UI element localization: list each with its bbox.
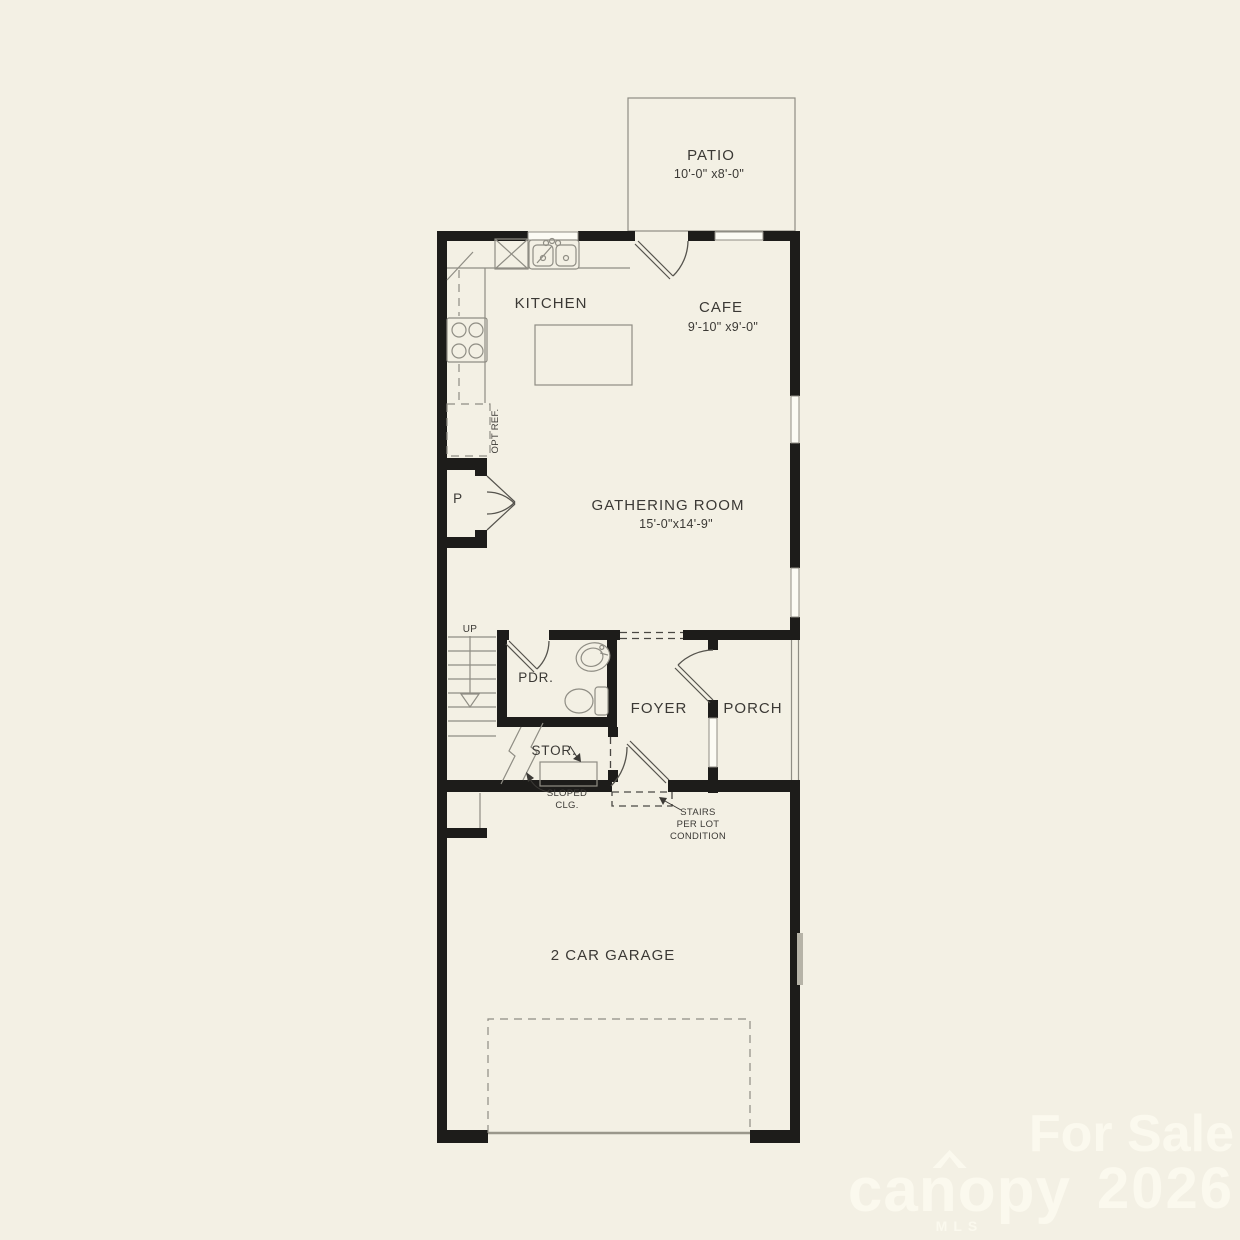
kitchen-island (535, 325, 632, 385)
sloped-clg-line1: SLOPED (547, 788, 587, 799)
foyer-sidelight-window (709, 718, 717, 767)
toilet (565, 687, 608, 715)
gathering-dims: 15'-0"x14'-9" (639, 517, 713, 531)
windows (528, 232, 803, 985)
porch-edge (792, 640, 799, 780)
gathering-window-lower (791, 568, 799, 617)
room-garage: 2 CAR GARAGE (480, 793, 750, 1133)
sloped-clg-line2: CLG. (555, 800, 578, 811)
stove (447, 318, 487, 362)
room-patio: PATIO 10'-0" x8'-0" (628, 98, 795, 231)
room-kitchen: OPT REF. KITCHEN (447, 239, 632, 457)
kitchen-label: KITCHEN (515, 295, 588, 312)
room-gathering: GATHERING ROOM 15'-0"x14'-9" (592, 497, 745, 639)
corner-cabinet (495, 239, 528, 269)
patio-door (635, 241, 688, 279)
break-line-1 (501, 727, 521, 784)
counter-corner-miter (447, 252, 473, 280)
garage-entry-door (611, 741, 669, 786)
patio-dims: 10'-0" x8'-0" (674, 167, 744, 181)
stairs-note-line3: CONDITION (670, 831, 726, 842)
cafe-window (715, 232, 763, 240)
room-pantry: P (453, 476, 515, 530)
room-foyer: FOYER (631, 650, 713, 717)
floor-plan: PATIO 10'-0" x8'-0" (0, 0, 1240, 1240)
patio-label: PATIO (687, 147, 735, 164)
front-door (675, 650, 713, 703)
gathering-label: GATHERING ROOM (592, 497, 745, 514)
up-label: UP (463, 624, 478, 635)
kitchen-sink (529, 239, 579, 270)
optional-refrigerator: OPT REF. (447, 404, 501, 456)
cafe-label: CAFE (699, 299, 743, 316)
pantry-double-door (487, 476, 515, 530)
stairs-direction-arrow (461, 694, 479, 707)
garage-wall-marker (797, 933, 803, 985)
powder-door (506, 641, 549, 672)
opt-ref-label: OPT REF. (490, 409, 501, 454)
stairs-note-line2: PER LOT (677, 819, 720, 830)
foyer-cased-opening (620, 633, 683, 639)
room-cafe: CAFE 9'-10" x9'-0" (635, 241, 758, 334)
walls (437, 231, 800, 1143)
garage-apron-dashed (488, 1019, 750, 1133)
stor-label: STOR. (531, 743, 576, 758)
stairs: UP (448, 624, 543, 784)
foyer-label: FOYER (631, 700, 688, 717)
pantry-label: P (453, 491, 463, 506)
gathering-window-upper (791, 396, 799, 443)
patio-outline (628, 98, 795, 231)
cafe-dims: 9'-10" x9'-0" (688, 320, 758, 334)
room-powder: PDR. (506, 639, 613, 715)
stairs-note-line1: STAIRS (680, 807, 715, 818)
room-porch: PORCH (723, 640, 798, 780)
porch-label: PORCH (723, 700, 782, 717)
garage-label: 2 CAR GARAGE (551, 947, 676, 964)
pdr-label: PDR. (518, 670, 553, 685)
